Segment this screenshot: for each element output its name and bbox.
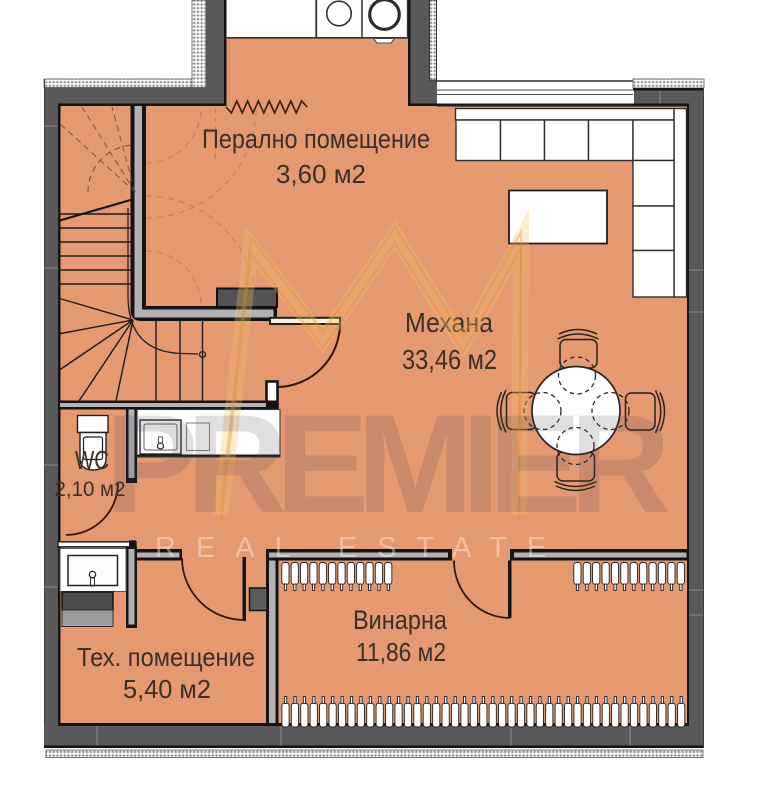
svg-text:3,60 м2: 3,60 м2 (276, 159, 366, 189)
svg-text:Тех. помещение: Тех. помещение (77, 642, 255, 672)
svg-text:REAL ESTATE: REAL ESTATE (155, 532, 566, 564)
svg-text:WC: WC (75, 445, 109, 475)
svg-text:11,86 м2: 11,86 м2 (356, 637, 446, 667)
svg-text:Винарна: Винарна (353, 605, 448, 635)
svg-text:5,40 м2: 5,40 м2 (123, 674, 211, 704)
svg-text:PREMIER: PREMIER (105, 385, 669, 542)
svg-text:33,46 м2: 33,46 м2 (402, 344, 497, 375)
svg-text:Перално помещение: Перално помещение (202, 124, 430, 154)
